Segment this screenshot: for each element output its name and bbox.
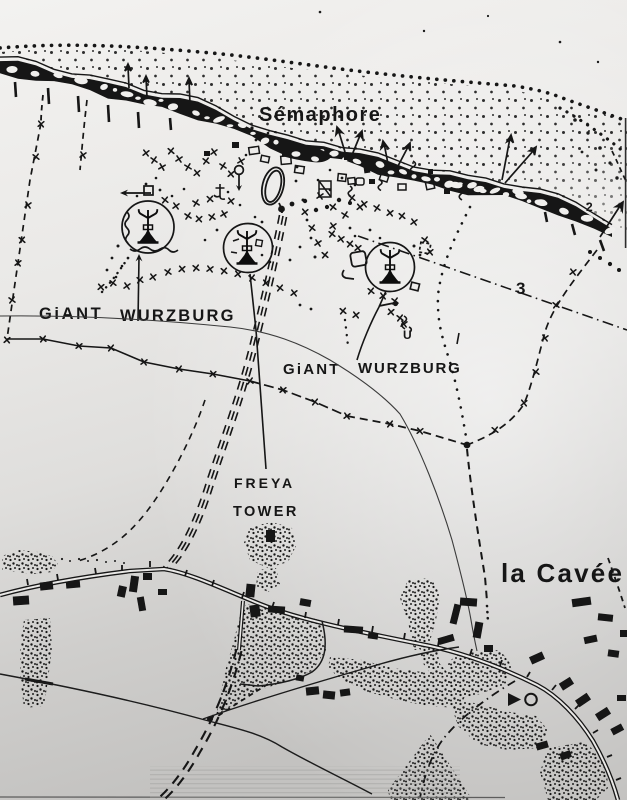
svg-text:2: 2	[586, 200, 593, 214]
svg-text:FREYA: FREYA	[234, 475, 295, 491]
svg-text:U: U	[403, 328, 412, 342]
svg-text:TOWER: TOWER	[233, 504, 299, 520]
svg-text:GiANT: GiANT	[283, 361, 341, 378]
svg-text:GiANT: GiANT	[39, 305, 103, 323]
svg-text:Sémaphore: Sémaphore	[259, 104, 381, 126]
svg-text:3: 3	[516, 279, 525, 298]
svg-text:WURZBURG: WURZBURG	[358, 360, 462, 377]
svg-text:la Cavée: la Cavée	[501, 558, 624, 588]
